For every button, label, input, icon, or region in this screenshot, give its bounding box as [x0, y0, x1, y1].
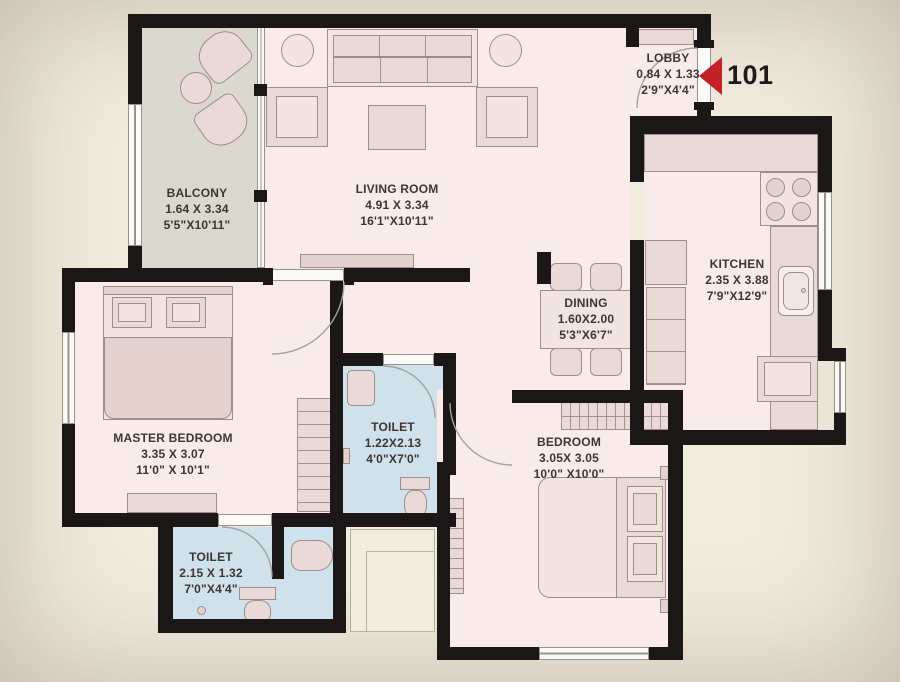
wall — [158, 619, 346, 633]
room-name: TOILET — [179, 549, 243, 565]
label-bedroom: BEDROOM 3.05X 3.05 10'0" X10'0" — [534, 434, 605, 482]
wall — [512, 390, 683, 403]
room-name: LIVING ROOM — [356, 181, 439, 197]
wall — [437, 462, 450, 660]
wall — [158, 527, 173, 633]
room-dim-m: 3.35 X 3.07 — [113, 446, 232, 462]
partition-frame-block — [254, 84, 267, 96]
sofa-seats — [333, 57, 472, 83]
wall — [630, 134, 644, 182]
dining-chair — [590, 348, 622, 376]
sofa-back-cushions — [333, 35, 472, 57]
room-dim-ft: 16'1"X10'11" — [356, 213, 439, 229]
room-dim-ft: 10'0" X10'0" — [534, 466, 605, 482]
room-name: TOILET — [365, 419, 422, 435]
shower-mixer — [197, 606, 206, 615]
room-name: LOBBY — [636, 50, 700, 66]
label-dining: DINING 1.60X2.00 5'3"X6'7" — [558, 295, 615, 343]
door-leaf-toilet — [383, 354, 434, 365]
refrigerator — [645, 240, 687, 285]
door-hinge — [694, 40, 714, 48]
wall — [128, 14, 710, 28]
shower-mixer — [343, 448, 350, 464]
wash-basin — [291, 540, 333, 571]
wall — [818, 290, 832, 350]
room-dim-m: 1.60X2.00 — [558, 311, 615, 327]
window — [818, 192, 832, 290]
label-kitchen: KITCHEN 2.35 X 3.88 7'9"X12'9" — [705, 256, 769, 304]
balcony-table — [180, 72, 212, 104]
wall — [272, 513, 284, 579]
pillow-inner — [172, 303, 200, 322]
burner — [792, 178, 811, 197]
wall — [630, 430, 846, 445]
window — [539, 647, 649, 660]
room-name: KITCHEN — [705, 256, 769, 272]
room-dim-m: 0.84 X 1.33 — [636, 66, 700, 82]
wall — [344, 268, 470, 282]
room-dim-m: 3.05X 3.05 — [534, 450, 605, 466]
wall — [333, 527, 346, 633]
side-table — [489, 34, 522, 67]
partition-frame-block — [254, 190, 267, 202]
wall — [437, 647, 539, 660]
wall — [343, 353, 383, 366]
kitchen-appliance-inner — [764, 362, 811, 396]
master-wardrobe — [297, 398, 331, 512]
room-dim-ft: 2'9"X4'4" — [636, 82, 700, 98]
kitchen-counter-top — [644, 134, 818, 172]
shoe-cabinet — [632, 29, 694, 45]
wall — [630, 116, 832, 134]
room-dim-m: 1.22X2.13 — [365, 435, 422, 451]
room-dim-m: 2.35 X 3.88 — [705, 272, 769, 288]
wall — [626, 27, 639, 47]
wash-basin — [347, 370, 375, 406]
label-toilet-common: TOILET 1.22X2.13 4'0"X7'0" — [365, 419, 422, 467]
door-hinge — [263, 268, 273, 285]
room-dim-m: 4.91 X 3.34 — [356, 197, 439, 213]
wall — [62, 268, 272, 282]
room-dim-m: 2.15 X 1.32 — [179, 565, 243, 581]
wall — [62, 513, 218, 527]
wall — [537, 252, 551, 284]
dresser — [127, 493, 217, 513]
bedroom-wardrobe — [561, 402, 681, 430]
dining-chair — [550, 348, 582, 376]
room-dim-ft: 4'0"X7'0" — [365, 451, 422, 467]
pillow-inner — [118, 303, 146, 322]
window — [834, 361, 846, 413]
room-dim-ft: 7'0"X4'4" — [179, 581, 243, 597]
burner — [766, 178, 785, 197]
wall — [630, 240, 644, 445]
tv-console — [300, 254, 414, 268]
sink-drain — [801, 288, 806, 293]
wall — [818, 134, 832, 192]
room-name: BEDROOM — [534, 434, 605, 450]
bedroom-bed — [538, 477, 620, 598]
unit-number-label: 101 — [727, 60, 774, 91]
wc-tank — [239, 587, 276, 600]
room-dim-ft: 7'9"X12'9" — [705, 288, 769, 304]
armchair-seat — [486, 96, 528, 138]
wall — [818, 348, 846, 361]
wall — [649, 647, 683, 660]
tall-kitchen-unit — [646, 287, 686, 385]
wall — [443, 353, 456, 475]
duct-shaft-inner — [366, 551, 435, 632]
wall — [668, 403, 683, 660]
room-dim-m: 1.64 X 3.34 — [164, 201, 231, 217]
master-bed-blanket — [104, 337, 232, 419]
label-living-room: LIVING ROOM 4.91 X 3.34 16'1"X10'11" — [356, 181, 439, 229]
door-hinge — [344, 268, 354, 285]
room-dim-ft: 5'3"X6'7" — [558, 327, 615, 343]
balcony-glass-partition — [257, 27, 265, 268]
window — [62, 332, 75, 424]
burner — [792, 202, 811, 221]
room-name: BALCONY — [164, 185, 231, 201]
door-leaf-toilet — [218, 514, 272, 526]
door-leaf-master — [272, 269, 344, 281]
armchair-seat — [276, 96, 318, 138]
wc-tank — [400, 477, 430, 490]
room-dim-ft: 11'0" X 10'1" — [113, 462, 232, 478]
door-hinge — [694, 102, 714, 110]
room-dim-ft: 5'5"X10'11" — [164, 217, 231, 233]
entrance-arrow-icon — [699, 57, 722, 95]
label-lobby: LOBBY 0.84 X 1.33 2'9"X4'4" — [636, 50, 700, 98]
window — [128, 104, 142, 246]
master-bed-headboard — [103, 286, 233, 295]
room-name: MASTER BEDROOM — [113, 430, 232, 446]
pillow-inner — [633, 543, 657, 575]
dining-chair — [590, 263, 622, 291]
pillow-inner — [633, 493, 657, 525]
side-table — [281, 34, 314, 67]
wall — [330, 281, 343, 527]
label-toilet-master: TOILET 2.15 X 1.32 7'0"X4'4" — [179, 549, 243, 597]
label-balcony: BALCONY 1.64 X 3.34 5'5"X10'11" — [164, 185, 231, 233]
coffee-table — [368, 105, 426, 150]
floor-plan: 101 BALCONY 1.64 X 3.34 5'5"X10'11" LIVI… — [0, 0, 900, 682]
dining-chair — [550, 263, 582, 291]
label-master-bedroom: MASTER BEDROOM 3.35 X 3.07 11'0" X 10'1" — [113, 430, 232, 478]
room-name: DINING — [558, 295, 615, 311]
burner — [766, 202, 785, 221]
